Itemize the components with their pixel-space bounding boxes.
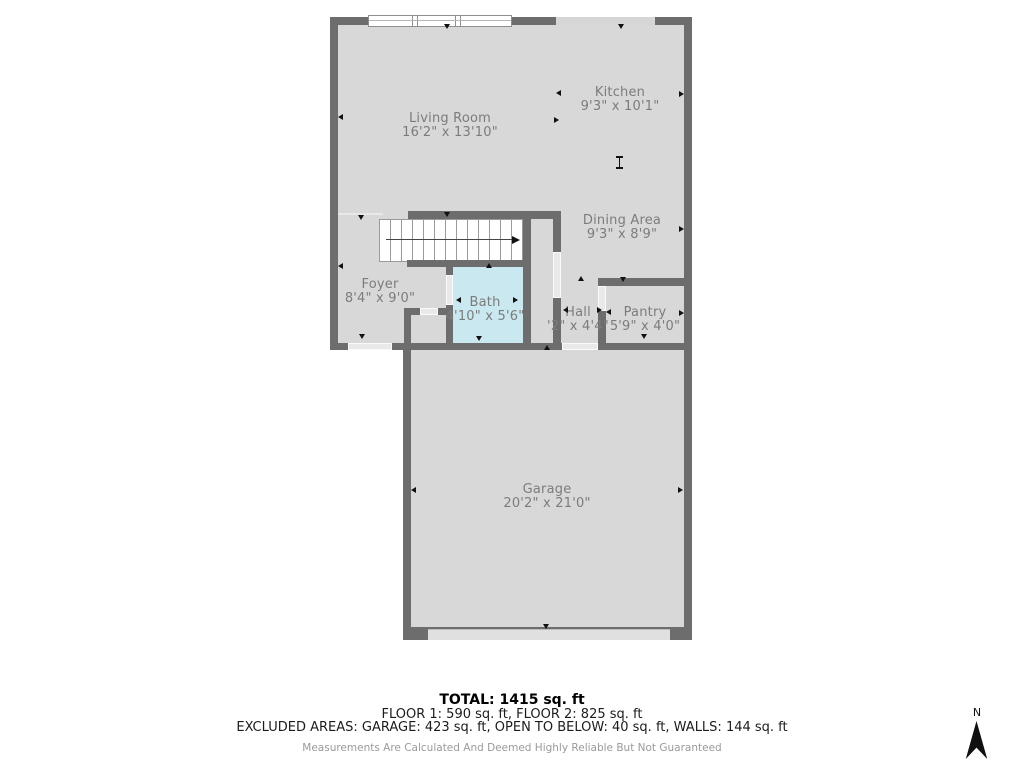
room-name: Living Room <box>370 112 530 126</box>
window-triple <box>368 15 512 27</box>
dimension-arrow-icon <box>444 212 450 217</box>
room-label-bath: Bath 4'10" x 5'6" <box>435 296 535 324</box>
dimension-arrow-icon <box>620 277 626 282</box>
dimension-extent-icon <box>616 156 623 169</box>
stair-direction-line <box>386 239 514 240</box>
room-dims: 8'4" x 9'0" <box>330 292 430 306</box>
wall-hall-left-upper <box>553 219 561 252</box>
room-dims: 5'9" x 4'0" <box>595 320 695 334</box>
room-label-garage: Garage 20'2" x 21'0" <box>487 483 607 511</box>
room-dims: 4'10" x 5'6" <box>435 310 535 324</box>
garage-door <box>428 629 670 640</box>
room-dims: 16'2" x 13'10" <box>370 126 530 140</box>
room-name: Foyer <box>330 278 430 292</box>
dimension-arrow-icon <box>578 276 584 281</box>
wall-bath-left-top <box>446 267 453 275</box>
door-garage-entry <box>562 343 598 350</box>
dimension-arrow-icon <box>338 114 343 120</box>
dimension-arrow-icon <box>641 334 647 339</box>
dimension-arrow-icon <box>554 117 559 123</box>
floorplan-canvas: Living Room 16'2" x 13'10" Kitchen 9'3" … <box>0 0 1024 768</box>
dimension-arrow-icon <box>358 215 364 220</box>
room-name: Bath <box>435 296 535 310</box>
room-name: Garage <box>487 483 607 497</box>
room-label-kitchen: Kitchen 9'3" x 10'1" <box>560 86 680 114</box>
staircase <box>379 219 523 262</box>
dimension-arrow-icon <box>444 24 450 29</box>
room-name: Dining Area <box>562 214 682 228</box>
dimension-arrow-icon <box>338 263 343 269</box>
wall-pantry-top <box>598 278 692 286</box>
dimension-arrow-icon <box>679 91 684 97</box>
dimension-arrow-icon <box>486 263 492 268</box>
window-mullion <box>455 15 461 27</box>
window-line <box>369 20 511 21</box>
room-label-dining-area: Dining Area 9'3" x 8'9" <box>562 214 682 242</box>
room-name: Kitchen <box>560 86 680 100</box>
room-label-foyer: Foyer 8'4" x 9'0" <box>330 278 430 306</box>
dimension-arrow-icon <box>544 345 550 350</box>
dimension-arrow-icon <box>543 624 549 629</box>
wall-opening-kitchen <box>556 17 655 25</box>
disclaimer-text: Measurements Are Calculated And Deemed H… <box>0 743 1024 754</box>
dimension-arrow-icon <box>476 336 482 341</box>
dimension-arrow-icon <box>563 307 568 313</box>
wall-stairs-top <box>408 211 561 219</box>
dimension-arrow-icon <box>679 226 684 232</box>
wall-closet-top-left <box>404 308 420 315</box>
room-dims: 20'2" x 21'0" <box>487 497 607 511</box>
dimension-arrow-icon <box>606 309 611 315</box>
total-area-text: TOTAL: 1415 sq. ft <box>0 693 1024 708</box>
dimension-arrow-icon <box>679 310 684 316</box>
dimension-arrow-icon <box>597 307 602 313</box>
dimension-arrow-icon <box>513 297 518 303</box>
dimension-arrow-icon <box>618 24 624 29</box>
wall-stairs-bottom <box>407 260 523 267</box>
room-label-living-room: Living Room 16'2" x 13'10" <box>370 112 530 140</box>
stair-arrow-icon <box>512 236 520 244</box>
dimension-arrow-icon <box>556 90 561 96</box>
door-hall <box>553 252 561 298</box>
dimension-arrow-icon <box>359 334 365 339</box>
dimension-arrow-icon <box>411 487 416 493</box>
room-dims: 9'3" x 10'1" <box>560 100 680 114</box>
room-dims: 9'3" x 8'9" <box>562 228 682 242</box>
window-mullion <box>412 15 418 27</box>
excluded-areas-text: EXCLUDED AREAS: GARAGE: 423 sq. ft, OPEN… <box>0 721 1024 734</box>
north-label: N <box>963 706 991 719</box>
dimension-arrow-icon <box>456 297 461 303</box>
door-entry <box>348 343 392 350</box>
wall-garage-left <box>403 343 411 640</box>
dimension-arrow-icon <box>678 487 683 493</box>
area-summary: TOTAL: 1415 sq. ft FLOOR 1: 590 sq. ft, … <box>0 693 1024 754</box>
